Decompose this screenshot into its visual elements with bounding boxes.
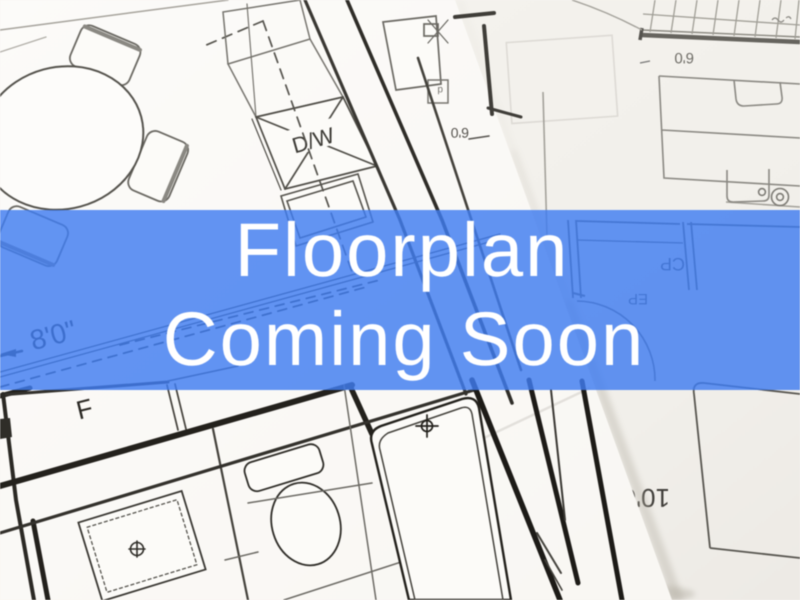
- svg-text:Floorplan: Floorplan: [235, 208, 570, 293]
- svg-text:6'0: 6'0: [674, 49, 694, 66]
- svg-text:Coming Soon: Coming Soon: [163, 297, 646, 382]
- svg-text:d: d: [437, 84, 443, 95]
- svg-text:6'0: 6'0: [451, 125, 469, 141]
